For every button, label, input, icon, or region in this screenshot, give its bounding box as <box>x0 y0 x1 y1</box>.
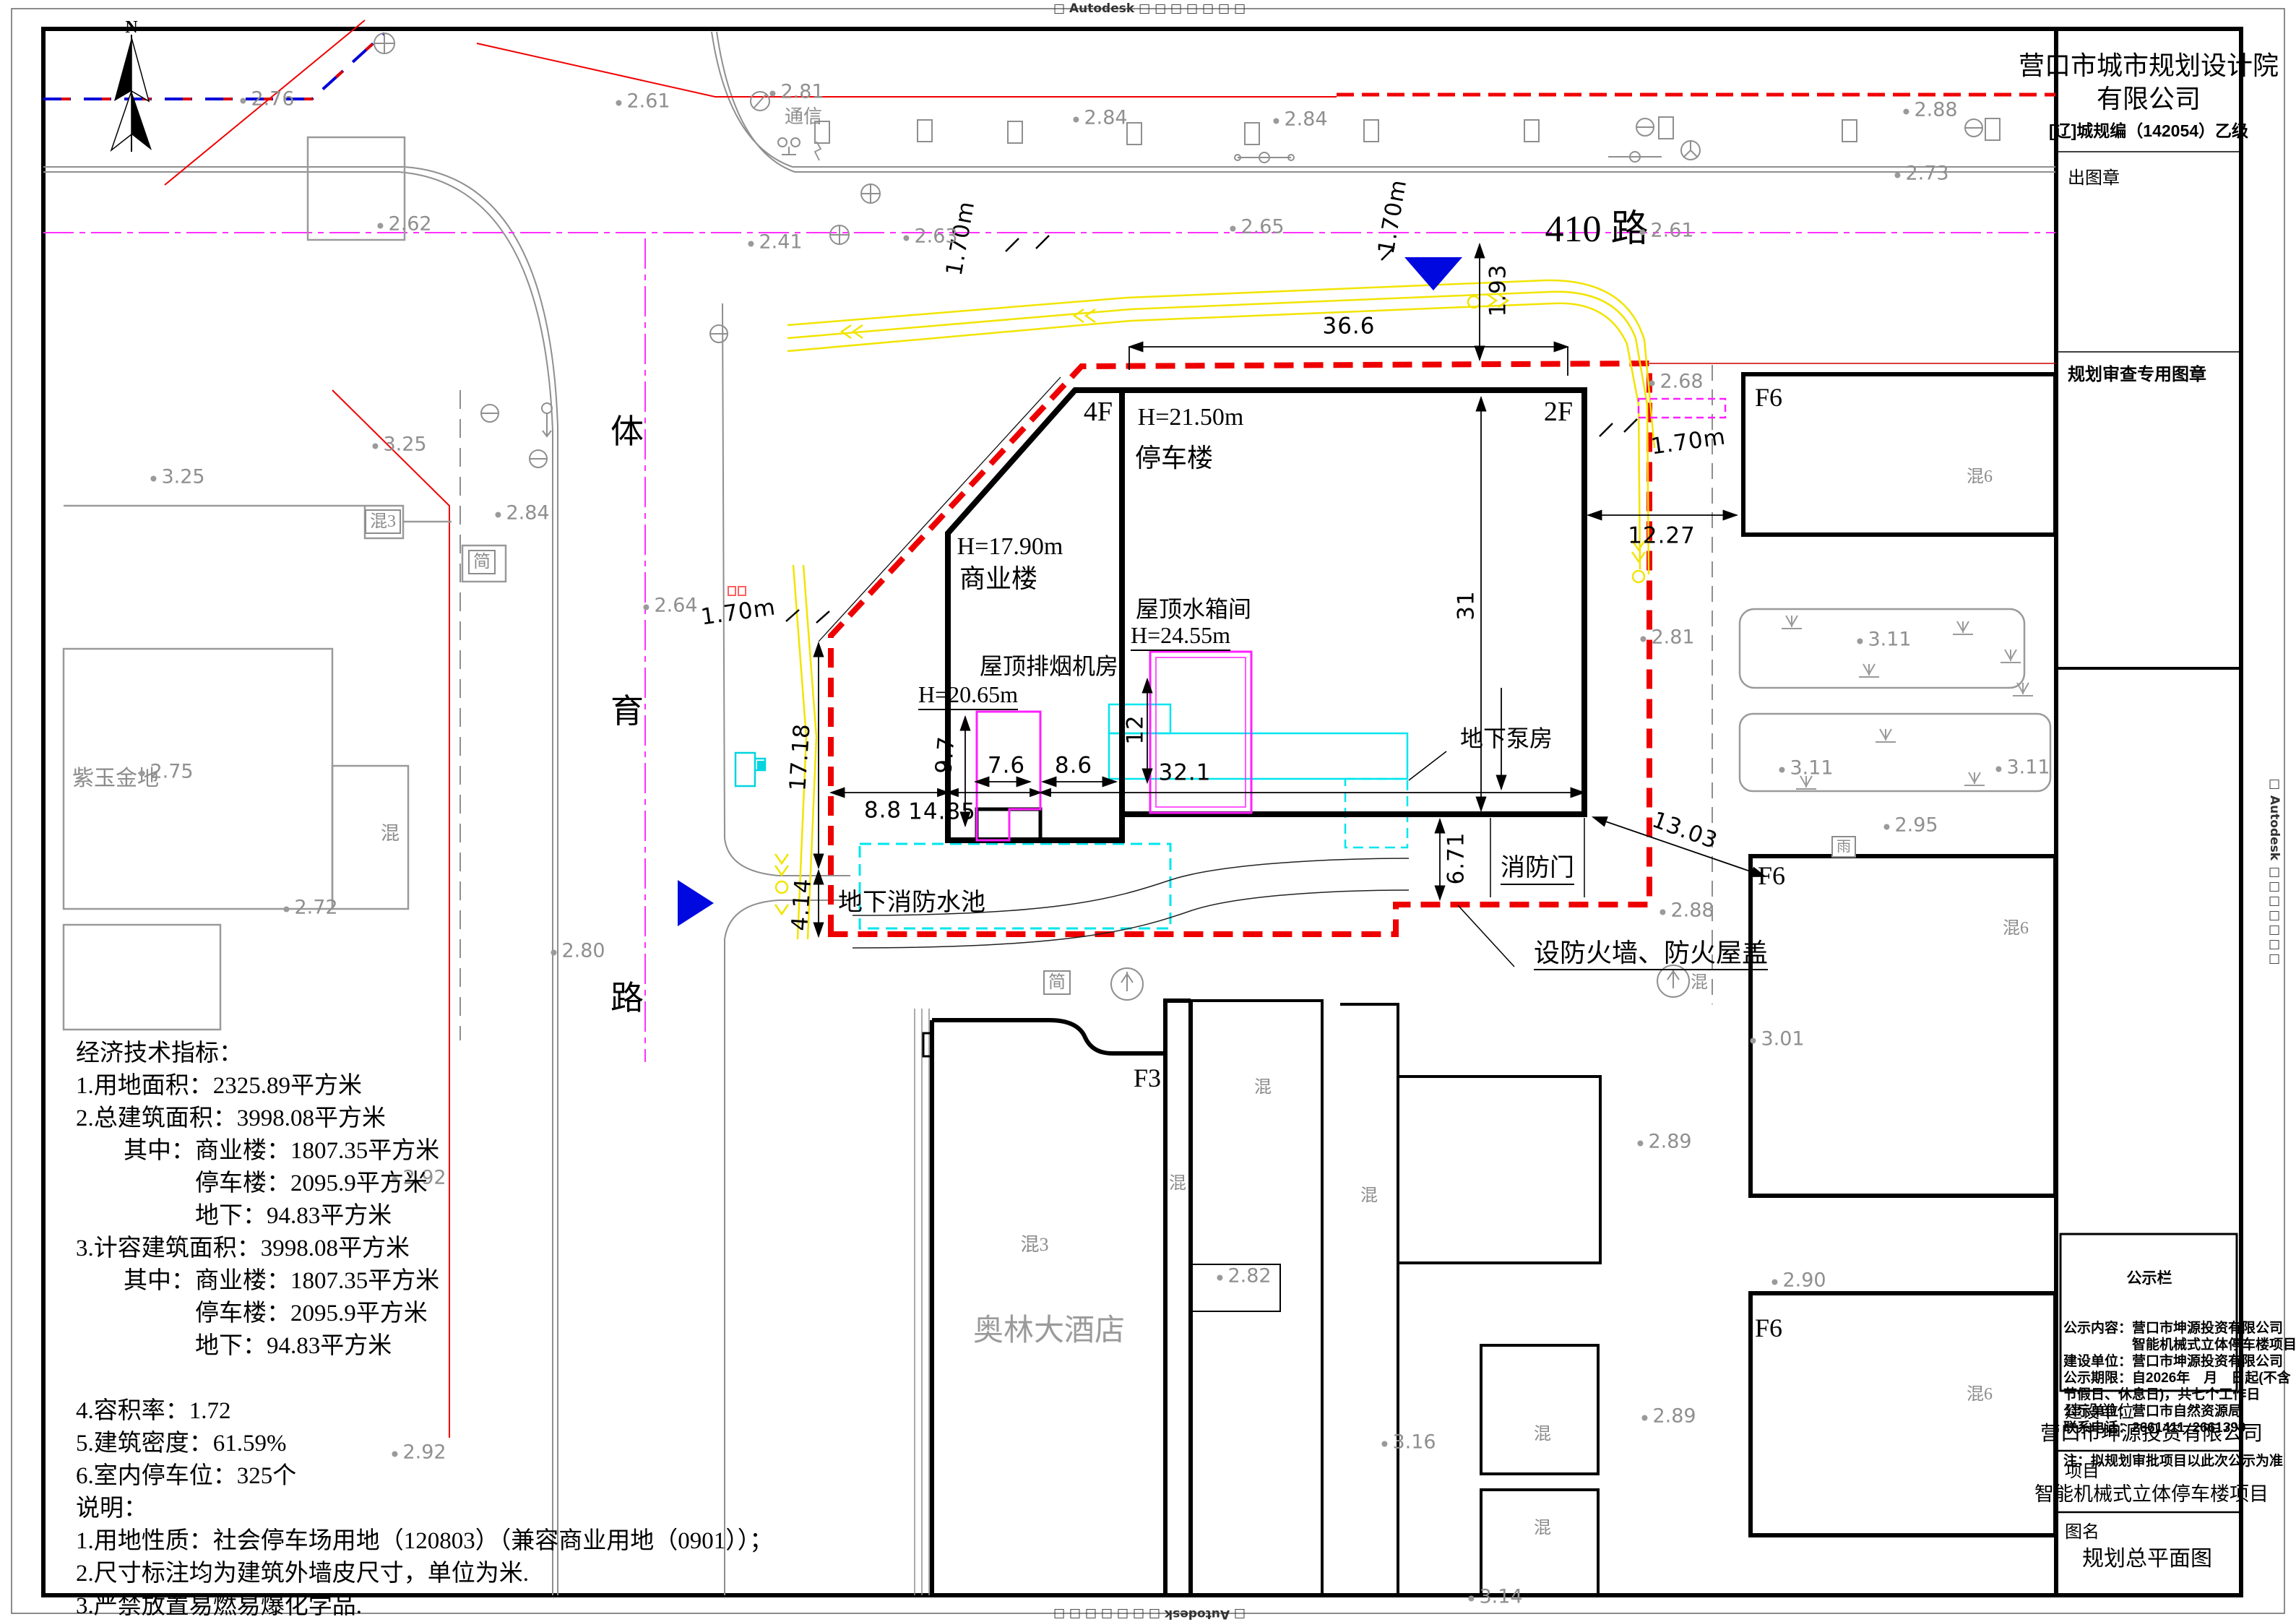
utility-line <box>43 33 394 99</box>
struct-label: 混6 <box>1967 1386 1993 1403</box>
review-stamp-section-label: 规划审查专用图章 <box>2068 360 2206 385</box>
drawing-name-label: 图名 <box>2065 1517 2099 1543</box>
floors-label: F6 <box>1755 1315 1782 1341</box>
struct-label: 简 <box>468 550 496 574</box>
height-label: H=21.50m <box>1138 405 1244 430</box>
dimension-label: 14.85 <box>908 801 976 824</box>
road-label-tiyu-1: 体 <box>610 415 644 449</box>
company-name-2: 有限公司 <box>2097 78 2201 116</box>
fire-pool-label: 地下消防水池 <box>838 891 985 915</box>
struct-label: 混6 <box>2003 920 2029 937</box>
floors-label: 4F <box>1084 398 1113 426</box>
watermark-top: □ Autodesk □ □ □ □ □ □ □ <box>1053 1 1246 16</box>
dimension-label: 6.71 <box>1446 832 1468 884</box>
floors-label: F6 <box>1755 384 1782 410</box>
height-label: H=17.90m <box>957 535 1063 559</box>
spot-elevation: 3.11 <box>1779 759 1833 778</box>
struct-label: 混 <box>381 824 400 843</box>
north-label: N <box>125 19 137 36</box>
building-label: 商业楼 <box>959 566 1037 592</box>
struct-label: 混 <box>1691 974 1708 991</box>
struct-label: 混 <box>1254 1079 1272 1096</box>
public-notice-title: 公示栏 <box>2063 1270 2235 1287</box>
floors-label: 2F <box>1544 398 1573 426</box>
spot-elevation: 2.73 <box>1894 164 1948 184</box>
spot-elevation: 2.89 <box>1641 1407 1696 1426</box>
site-boundary-redline <box>831 363 1649 934</box>
spot-elevation: 2.84 <box>1273 110 1327 129</box>
spot-elevation: 2.88 <box>1903 100 1957 120</box>
rain-label: 雨 <box>1831 836 1856 858</box>
spot-elevation: 2.64 <box>643 596 697 616</box>
height-label: H=20.65m <box>918 683 1018 710</box>
road-label-tiyu-2: 育 <box>610 695 644 728</box>
spot-elevation: 2.82 <box>1217 1267 1271 1286</box>
floors-label: F3 <box>1134 1065 1161 1091</box>
spot-elevation: 2.84 <box>495 504 549 523</box>
spot-elevation: 3.11 <box>1995 758 2050 777</box>
pump-room-label: 地下泵房 <box>1460 727 1553 750</box>
company-name: 营口市城市规划设计院 <box>2019 45 2279 82</box>
site-plan-drawing: 410 路体育路紫玉金地混3简简通信混4F2FH=21.50m停车楼H=17.9… <box>0 0 2296 1622</box>
spot-elevation: 3.25 <box>372 435 426 454</box>
dimension-label: 12.27 <box>1628 525 1696 548</box>
spot-elevation: 2.62 <box>377 215 431 234</box>
spot-elevation: 3.25 <box>150 467 204 487</box>
building-label: 停车楼 <box>1135 445 1213 471</box>
struct-label: 简 <box>1043 970 1071 995</box>
struct-label: 混3 <box>365 509 401 534</box>
dimension-label: 32.1 <box>1158 762 1211 785</box>
dimension-label: 12 <box>1125 715 1147 744</box>
spot-elevation: 2.75 <box>139 762 193 782</box>
struct-label: 混 <box>1169 1175 1186 1192</box>
spot-elevation: 2.76 <box>240 90 294 109</box>
rooftop-label: 屋顶排烟机房 <box>980 655 1118 678</box>
spot-elevation: 2.80 <box>551 941 605 961</box>
dimension-label: 31 <box>1456 590 1478 620</box>
dimension-label: 9.7 <box>933 735 958 775</box>
dimension-label: 17.18 <box>787 722 813 792</box>
north-arrow-icon <box>111 35 152 152</box>
spot-elevation: 2.41 <box>748 233 802 252</box>
spot-elevation: 2.61 <box>1639 221 1693 241</box>
dimension-label: 7.6 <box>988 755 1025 777</box>
spot-elevation: 2.81 <box>1640 628 1694 647</box>
struct-label: 混6 <box>1967 468 1993 486</box>
road-centerlines <box>43 233 2055 1062</box>
spot-elevation: 3.14 <box>1468 1587 1522 1607</box>
spot-elevation: 2.90 <box>1771 1271 1826 1290</box>
rooftop-label: 屋顶水箱间 <box>1136 598 1251 621</box>
spot-elevation: 2.95 <box>1883 816 1938 835</box>
hotel-label: 奥林大酒店 <box>973 1316 1125 1346</box>
struct-label: 混 <box>1360 1187 1378 1204</box>
spot-elevation: 2.63 <box>903 227 957 246</box>
struct-label: 混 <box>1534 1425 1551 1443</box>
spot-elevation: 2.88 <box>1660 901 1714 920</box>
dimension-label: 4.14 <box>789 877 815 931</box>
height-label: H=24.55m <box>1131 624 1230 651</box>
road-label-tiyu-3: 路 <box>610 982 644 1015</box>
drawing-name-value: 规划总平面图 <box>2082 1540 2212 1572</box>
economic-indicators-notes: 经济技术指标： 1.用地面积：2325.89平方米 2.总建筑面积：3998.0… <box>76 1038 773 1622</box>
road-label-410: 410 路 <box>1545 211 1648 249</box>
builder-value: 营口市坤源投资有限公司 <box>2040 1418 2263 1446</box>
dimension-label: 36.6 <box>1322 316 1375 338</box>
floors-label: F6 <box>1758 863 1785 889</box>
dimension-label: 8.8 <box>864 800 902 822</box>
spot-elevation: 2.61 <box>616 92 670 111</box>
spot-elevation: 2.84 <box>1073 108 1127 128</box>
spot-elevation: 2.72 <box>283 898 337 918</box>
dimension-lines <box>819 244 1765 967</box>
spot-elevation: 2.81 <box>769 82 824 102</box>
utility-label: 通信 <box>785 108 822 126</box>
struct-label: 混 <box>1534 1519 1551 1537</box>
spot-elevation: 2.89 <box>1637 1132 1691 1152</box>
firewall-label: 设防火墙、防火屋盖 <box>1534 940 1768 970</box>
proposed-buildings <box>948 390 1584 840</box>
public-notice-body: 公示内容：营口市坤源投资有限公司 智能机械式立体停车楼项目 建设单位：营口市坤源… <box>2063 1320 2235 1470</box>
company-cert: [辽]城规编（142054）乙级 <box>2049 117 2248 142</box>
struct-label: 混3 <box>1020 1235 1048 1254</box>
project-value: 智能机械式立体停车楼项目 <box>2034 1478 2269 1506</box>
dimension-label: 1.93 <box>1488 264 1510 316</box>
watermark-bottom: □ Autodesk □ □ □ □ □ □ □ <box>1053 1607 1246 1621</box>
fire-door-label: 消防门 <box>1501 856 1574 885</box>
spot-elevation: 2.68 <box>1649 372 1703 392</box>
dimension-label: 8.6 <box>1055 755 1092 777</box>
spot-elevation: 3.11 <box>1857 630 1911 650</box>
spot-elevation: 3.16 <box>1381 1433 1436 1452</box>
stamp-section-label: 出图章 <box>2068 163 2120 189</box>
watermark-side: □ Autodesk □□□□□□□ <box>2267 777 2282 966</box>
spot-elevation: 3.01 <box>1750 1030 1804 1049</box>
spot-elevation: 2.65 <box>1230 217 1284 237</box>
